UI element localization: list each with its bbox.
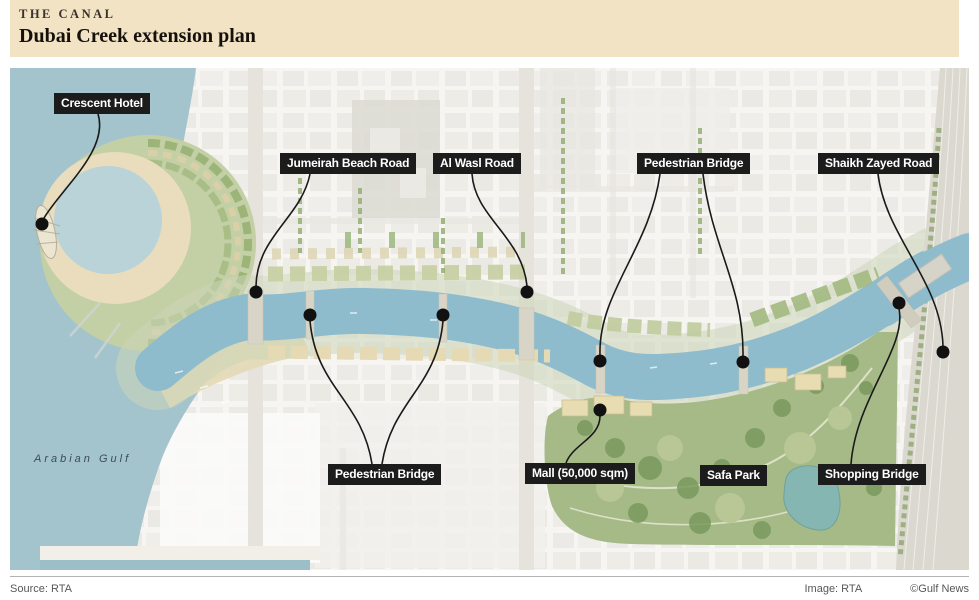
al-wasl-road-bridge bbox=[519, 308, 534, 360]
sea-label: Arabian Gulf bbox=[34, 453, 131, 465]
infographic: THE CANAL Dubai Creek extension plan bbox=[0, 0, 979, 600]
image-credit: Image: RTA bbox=[804, 583, 862, 595]
shore-strip bbox=[40, 546, 320, 560]
map-label-shaikh-zayed-road: Shaikh Zayed Road bbox=[818, 153, 939, 174]
page-title: Dubai Creek extension plan bbox=[19, 25, 959, 48]
map-label-safa-park: Safa Park bbox=[700, 465, 767, 486]
map-label-shopping-bridge: Shopping Bridge bbox=[818, 464, 926, 485]
kicker: THE CANAL bbox=[19, 7, 959, 22]
map-label-mall: Mall (50,000 sqm) bbox=[525, 463, 635, 484]
map-label-pedestrian-bridge-bottom: Pedestrian Bridge bbox=[328, 464, 441, 485]
map-image bbox=[10, 68, 969, 570]
map-panel: Arabian Gulf Crescent Hotel Jumeirah Bea… bbox=[10, 68, 969, 570]
copyright: ©Gulf News bbox=[910, 583, 969, 595]
map-label-pedestrian-bridge-top: Pedestrian Bridge bbox=[637, 153, 750, 174]
source-credit: Source: RTA bbox=[10, 583, 72, 595]
header: THE CANAL Dubai Creek extension plan bbox=[10, 0, 959, 57]
map-label-jumeirah-beach-road: Jumeirah Beach Road bbox=[280, 153, 416, 174]
map-label-al-wasl-road: Al Wasl Road bbox=[433, 153, 521, 174]
map-label-crescent-hotel: Crescent Hotel bbox=[54, 93, 150, 114]
breakwater bbox=[40, 560, 310, 570]
footer: Source: RTA Image: RTA ©Gulf News bbox=[10, 576, 969, 595]
